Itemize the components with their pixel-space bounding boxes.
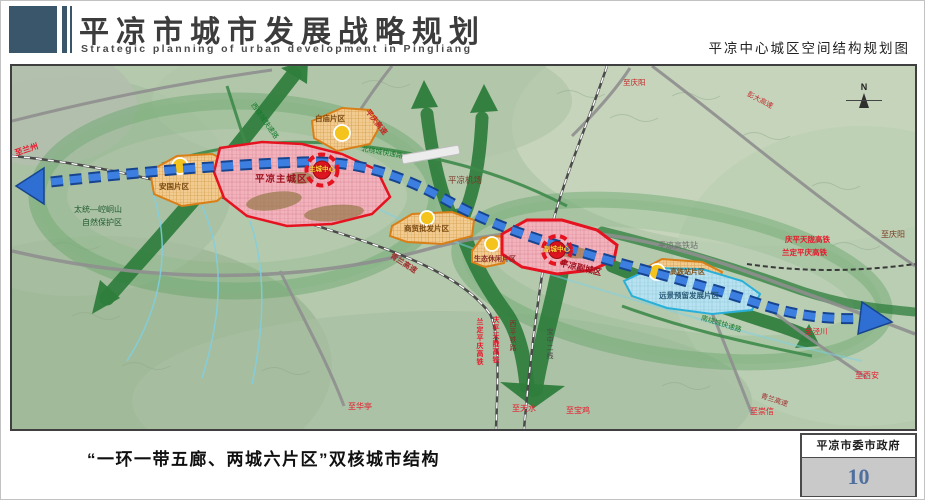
north-compass: N: [844, 82, 884, 101]
map-panel: 至兰州 太统—崆峒山 自然保护区 西绕城快速路 平庆高速 白庙片区 北绕城快速路…: [10, 64, 917, 431]
page-number: 10: [802, 458, 915, 496]
label-main-city: 平凉主城区: [255, 175, 308, 185]
map-subtitle: 平凉中心城区空间结构规划图: [709, 37, 911, 57]
header: 平凉市城市发展战略规划 Strategic planning of urban …: [1, 1, 924, 64]
label-reserve-district: 远景预留发展片区: [659, 292, 719, 300]
label-to-tianshui: 至天水: [512, 405, 536, 413]
label-to-qingyang-right: 至庆阳: [881, 231, 905, 239]
header-bar-icon: [70, 6, 72, 53]
label-to-chongxin: 至崇信: [750, 408, 774, 416]
page-title-en: Strategic planning of urban development …: [81, 43, 472, 55]
page: 平凉市城市发展战略规划 Strategic planning of urban …: [0, 0, 925, 500]
label-sub-core: 副城中心: [544, 247, 570, 254]
label-airport: 平凉机场: [448, 176, 482, 185]
footer-info-box: 平凉市委市政府 10: [800, 433, 917, 497]
header-bar-icon: [62, 6, 67, 53]
compass-bar: [846, 100, 882, 101]
label-to-qingyang-top: 至庆阳: [623, 79, 646, 87]
label-wholesale-district: 商贸批发片区: [404, 225, 449, 233]
logo-square: [9, 6, 57, 53]
label-qingping-hsr-vertical: 庆平天陇高铁: [492, 316, 499, 364]
label-qingping-hsr: 庆平天陇高铁: [785, 236, 830, 244]
label-baozhong-railway: 宝中二线: [546, 328, 553, 360]
footer: “一环一带五廊、两城六片区”双核城市结构 平凉市委市政府 10: [1, 431, 924, 500]
label-hsr-station: 平凉高铁站: [658, 242, 698, 250]
label-baimiao-district: 白庙片区: [315, 115, 345, 123]
label-landing-hsr: 兰定平庆高铁: [782, 249, 827, 257]
label-main-core: 主城中心: [309, 167, 335, 174]
label-to-huating: 至华亭: [348, 403, 372, 411]
label-hsr-district: 高铁站片区: [670, 269, 705, 276]
label-xiping-railway: 西平铁路: [509, 320, 516, 352]
government-label: 平凉市委市政府: [802, 435, 915, 458]
label-leisure-district: 生态休闲片区: [474, 256, 516, 263]
label-nature-reserve-1: 太统—崆峒山: [74, 206, 122, 214]
map-graphic: [12, 66, 915, 429]
structure-caption: “一环一带五廊、两城六片区”双核城市结构: [87, 445, 440, 470]
north-label: N: [844, 82, 884, 92]
label-to-baoji: 至宝鸡: [566, 407, 590, 415]
label-to-xian: 至西安: [855, 372, 879, 380]
label-nature-reserve-2: 自然保护区: [82, 219, 122, 227]
label-landing-hsr-vertical: 兰定平庆高铁: [476, 318, 483, 366]
label-to-jingchuan: 至泾川: [805, 328, 828, 336]
label-anguo-district: 安国片区: [159, 183, 189, 191]
